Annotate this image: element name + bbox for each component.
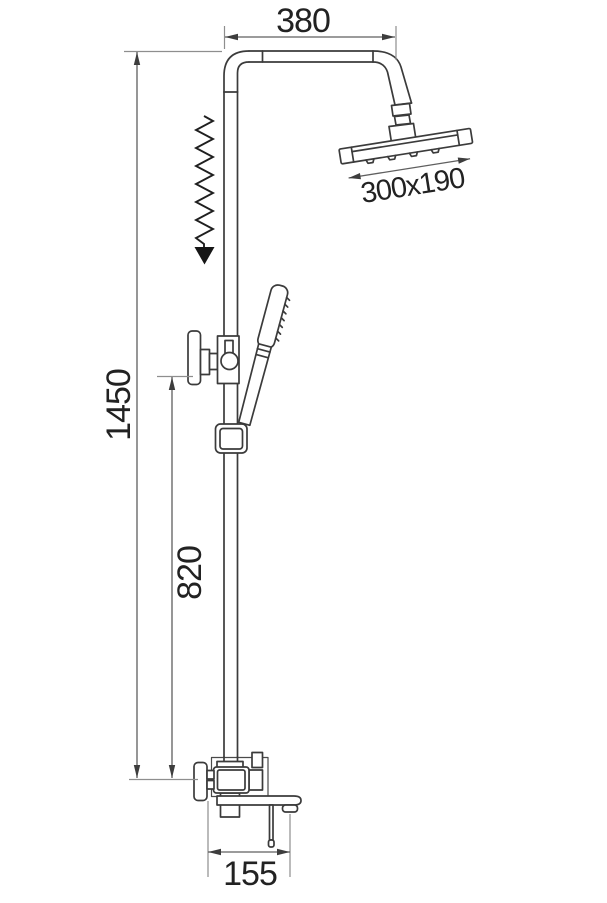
spout-outlet-nub — [283, 805, 298, 812]
connector-segment — [392, 104, 412, 117]
wand-handle — [238, 344, 272, 426]
mixer-valve — [194, 753, 301, 848]
dimension-lower-height: 820 — [129, 377, 209, 780]
height-adjust-zigzag-arrow-icon — [195, 116, 215, 265]
lower-height-label: 820 — [171, 546, 209, 600]
mixer-handle-stem — [207, 771, 214, 780]
technical-drawing-canvas: 300x190 — [0, 0, 607, 903]
mixer-body-face — [218, 770, 246, 790]
pull-rod-tip — [269, 840, 275, 847]
spout-reach-label: 155 — [223, 855, 277, 893]
arrowhead — [208, 849, 221, 855]
wand-holder-bracket — [188, 331, 239, 385]
arrowhead — [169, 765, 175, 778]
pipe-bend-inner — [238, 62, 250, 92]
shower-column-drawing: 300x190 — [0, 0, 607, 903]
arrowhead — [225, 34, 238, 40]
rail-slider — [216, 424, 248, 453]
hand-shower-wand — [236, 283, 293, 426]
arrowhead — [134, 52, 140, 65]
pipe-arm-inner — [373, 62, 395, 105]
diverter-pull-rod — [270, 805, 274, 840]
pipe-bend-outer — [224, 51, 249, 92]
holder-stem-outer — [201, 350, 210, 375]
mixer-handle-stem — [207, 781, 214, 790]
mixer-top-stub — [252, 753, 263, 768]
wand-head — [256, 283, 289, 349]
slider-inner — [220, 429, 243, 450]
arrowhead — [134, 765, 140, 778]
top-width-label: 380 — [276, 2, 330, 40]
rain-shower-head: 300x190 — [339, 128, 480, 212]
total-height-label: 1450 — [100, 369, 138, 441]
arrowhead — [382, 34, 395, 40]
arrowhead — [169, 377, 175, 390]
spout — [217, 796, 301, 805]
head-size-label: 300x190 — [359, 162, 467, 210]
holder-stem-inner — [210, 354, 218, 370]
arrowhead — [277, 849, 290, 855]
holder-pivot — [221, 353, 238, 370]
head-swivel-connector — [389, 104, 416, 143]
mixer-right-block — [249, 770, 263, 790]
pipe-top-run — [249, 51, 373, 62]
mixer-handle-knob — [194, 763, 207, 801]
dimension-total-height: 1450 — [100, 52, 222, 779]
